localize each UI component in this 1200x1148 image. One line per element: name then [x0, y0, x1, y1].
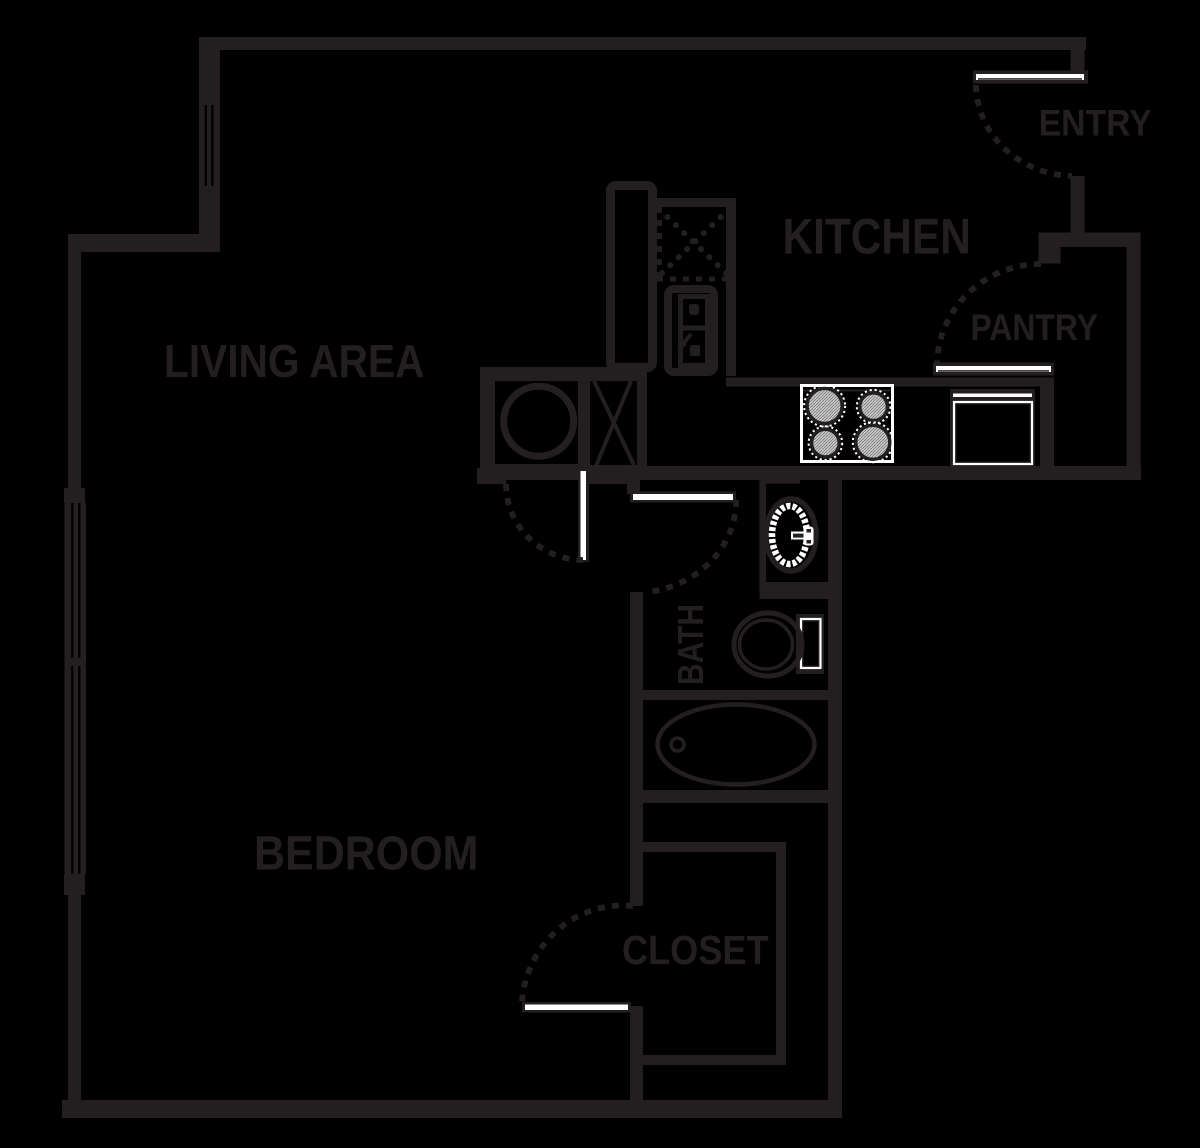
svg-text:BEDROOM: BEDROOM: [254, 828, 479, 881]
svg-text:BATH: BATH: [670, 604, 711, 685]
svg-text:LIVING AREA: LIVING AREA: [164, 335, 425, 387]
svg-text:PANTRY: PANTRY: [971, 306, 1099, 348]
svg-text:ENTRY: ENTRY: [1039, 102, 1152, 144]
svg-text:KITCHEN: KITCHEN: [783, 208, 971, 264]
svg-text:CLOSET: CLOSET: [622, 927, 769, 973]
